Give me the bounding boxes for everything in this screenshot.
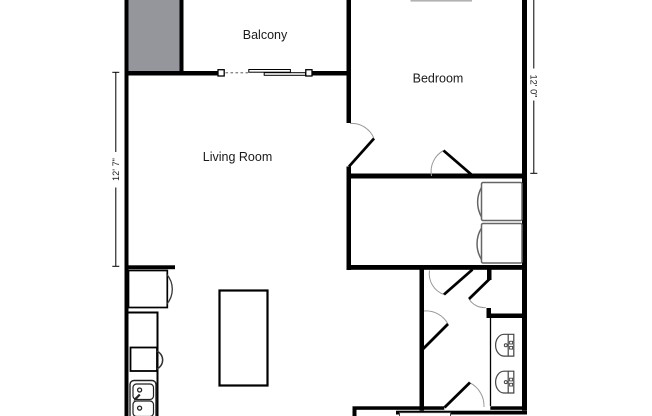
svg-text:12' 7": 12' 7"	[111, 158, 121, 181]
svg-text:Bedroom: Bedroom	[413, 72, 464, 86]
svg-text:Balcony: Balcony	[243, 28, 288, 42]
svg-text:12' 0": 12' 0"	[529, 75, 539, 98]
svg-text:Living Room: Living Room	[203, 150, 272, 164]
